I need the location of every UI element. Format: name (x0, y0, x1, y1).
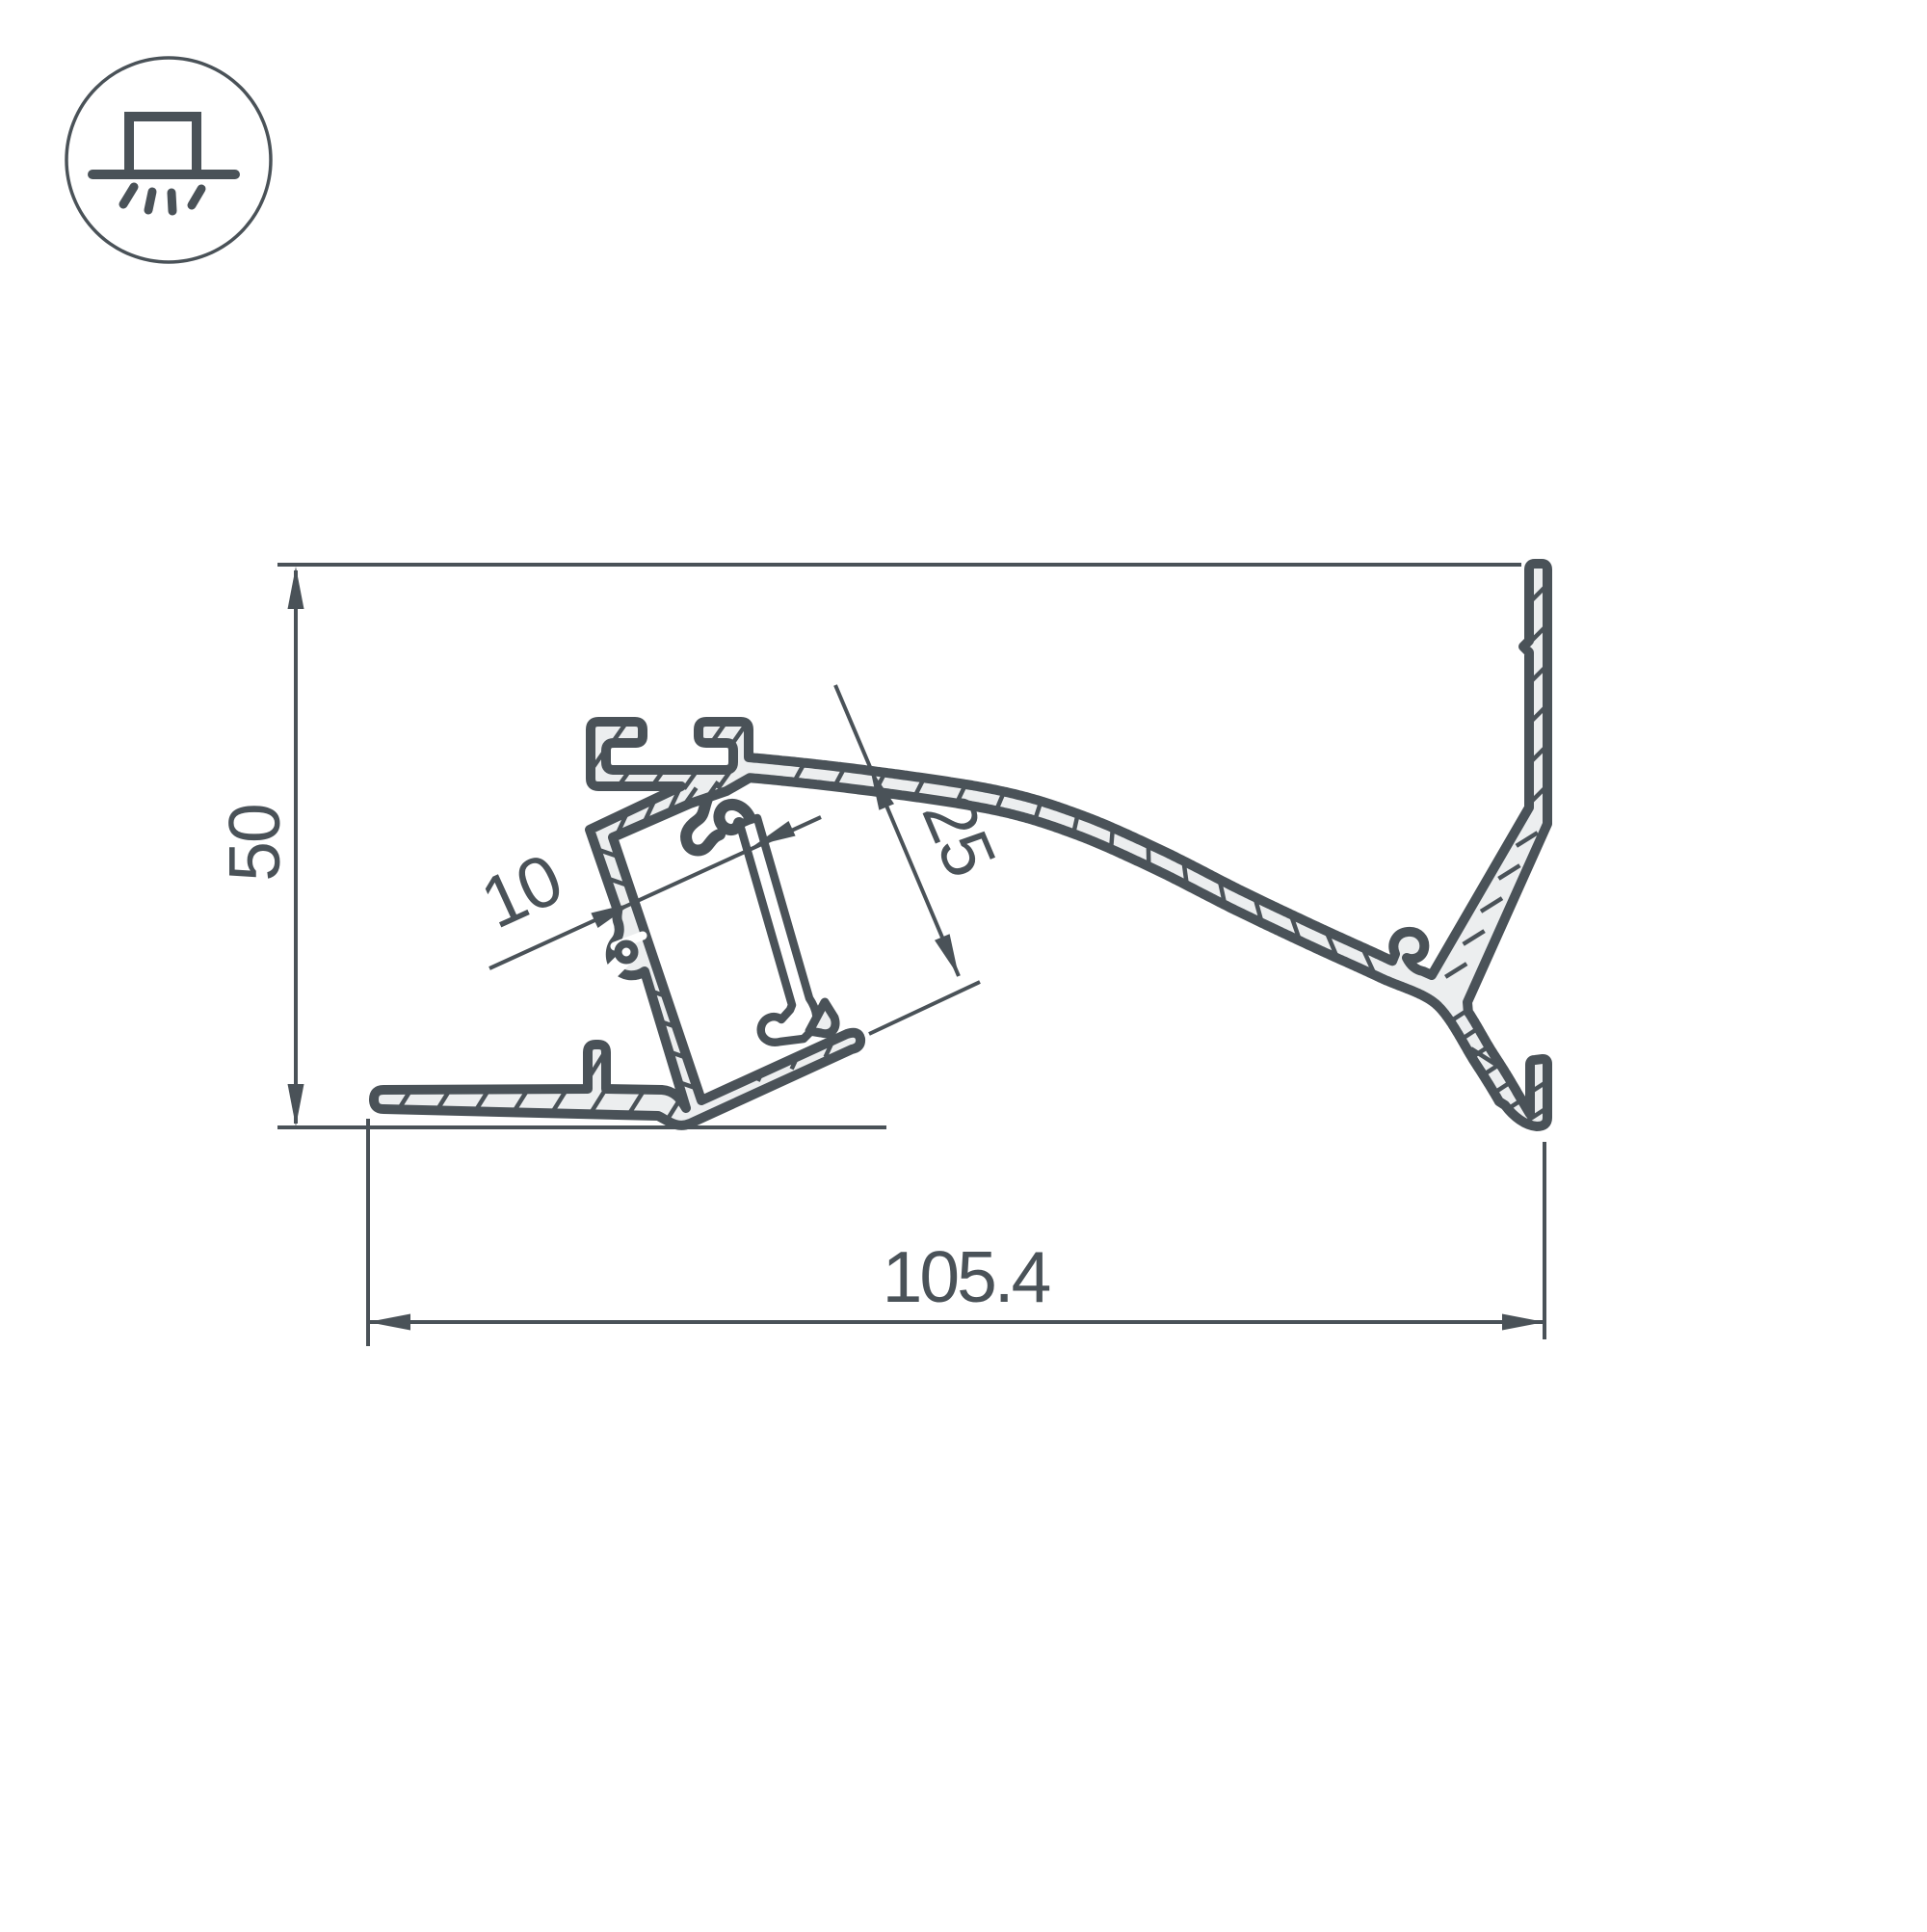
svg-text:50: 50 (214, 805, 295, 881)
svg-text:105.4: 105.4 (883, 1236, 1050, 1317)
